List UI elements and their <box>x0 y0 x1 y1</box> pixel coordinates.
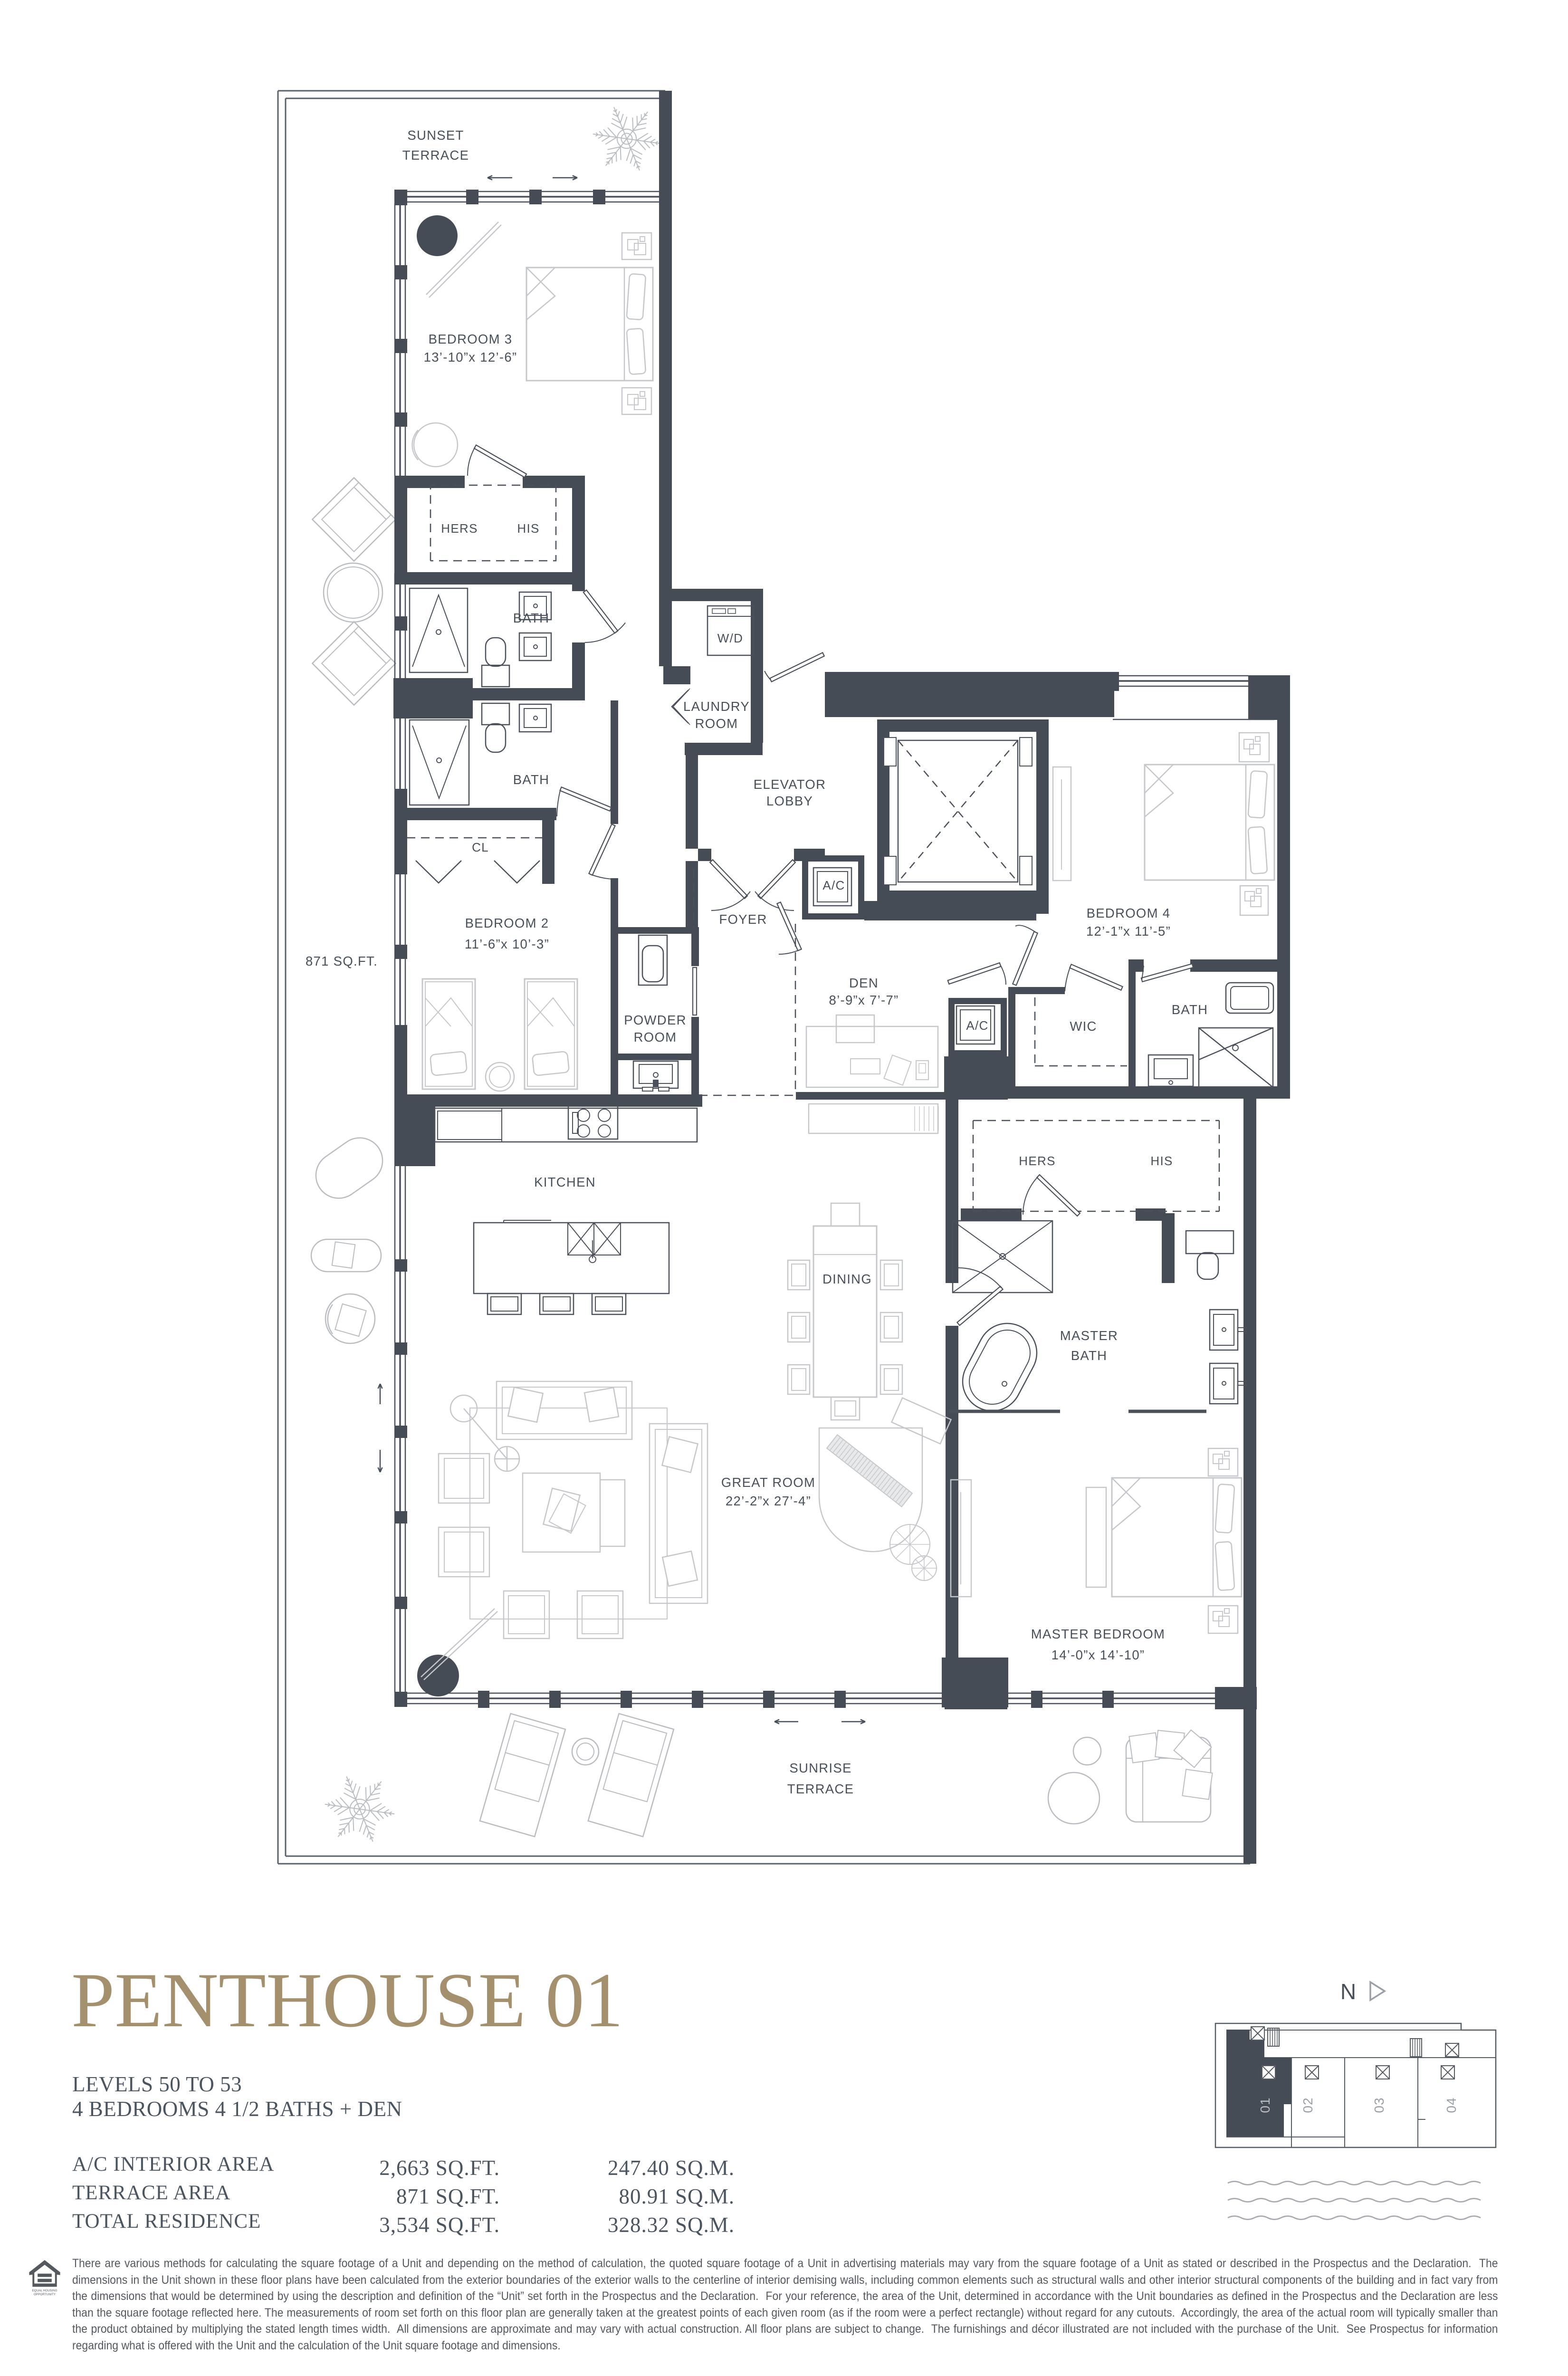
svg-text:04: 04 <box>1444 2097 1459 2113</box>
svg-text:8’-9”x 7’-7”: 8’-9”x 7’-7” <box>829 993 899 1007</box>
svg-text:WIC: WIC <box>1070 1019 1097 1034</box>
svg-text:TERRACE: TERRACE <box>402 148 469 163</box>
svg-text:LOBBY: LOBBY <box>766 794 813 808</box>
svg-text:HERS: HERS <box>441 521 478 536</box>
svg-text:HIS: HIS <box>517 521 539 536</box>
svg-text:SUNSET: SUNSET <box>407 128 464 143</box>
svg-text:01: 01 <box>1258 2097 1272 2113</box>
svg-text:14’-0”x 14’-10”: 14’-0”x 14’-10” <box>1052 1648 1145 1662</box>
svg-text:22’-2”x 27’-4”: 22’-2”x 27’-4” <box>726 1494 811 1508</box>
svg-text:CL: CL <box>472 840 489 854</box>
svg-text:SUNRISE: SUNRISE <box>789 1761 851 1775</box>
svg-text:12’-1”x 11’-5”: 12’-1”x 11’-5” <box>1086 924 1171 939</box>
svg-text:MASTER: MASTER <box>1060 1328 1118 1343</box>
svg-text:ROOM: ROOM <box>634 1030 677 1044</box>
svg-text:13’-10”x 12’-6”: 13’-10”x 12’-6” <box>424 350 517 364</box>
svg-text:03: 03 <box>1372 2097 1386 2113</box>
svg-text:N: N <box>1340 1979 1357 2004</box>
svg-text:DEN: DEN <box>849 976 879 990</box>
svg-text:FOYER: FOYER <box>719 912 767 927</box>
svg-text:HERS: HERS <box>1019 1154 1055 1168</box>
svg-text:BEDROOM 2: BEDROOM 2 <box>465 916 549 930</box>
svg-text:BATH: BATH <box>513 772 550 787</box>
svg-text:EQUAL HOUSING: EQUAL HOUSING <box>32 2289 57 2292</box>
svg-text:02: 02 <box>1300 2097 1315 2113</box>
svg-text:A/C: A/C <box>966 1018 988 1033</box>
svg-text:BEDROOM 3: BEDROOM 3 <box>429 332 513 346</box>
svg-text:A/C: A/C <box>822 878 845 892</box>
svg-text:BEDROOM 4: BEDROOM 4 <box>1087 906 1171 920</box>
svg-text:OPPORTUNITY: OPPORTUNITY <box>34 2293 56 2296</box>
svg-text:HIS: HIS <box>1150 1154 1173 1168</box>
svg-text:BATH: BATH <box>513 611 550 625</box>
svg-text:DINING: DINING <box>822 1272 872 1286</box>
svg-text:BATH: BATH <box>1172 1002 1208 1017</box>
svg-text:ELEVATOR: ELEVATOR <box>754 777 826 792</box>
svg-text:GREAT ROOM: GREAT ROOM <box>721 1475 815 1490</box>
svg-text:BATH: BATH <box>1071 1348 1108 1363</box>
svg-text:W/D: W/D <box>717 631 743 645</box>
svg-text:11’-6”x 10’-3”: 11’-6”x 10’-3” <box>465 937 549 951</box>
svg-text:MASTER BEDROOM: MASTER BEDROOM <box>1031 1627 1166 1641</box>
svg-text:POWDER: POWDER <box>624 1013 687 1027</box>
svg-text:871 SQ.FT.: 871 SQ.FT. <box>306 954 378 968</box>
svg-text:LAUNDRY: LAUNDRY <box>683 699 750 714</box>
svg-text:ROOM: ROOM <box>695 716 738 731</box>
svg-text:TERRACE: TERRACE <box>787 1782 854 1796</box>
svg-text:KITCHEN: KITCHEN <box>534 1175 596 1189</box>
